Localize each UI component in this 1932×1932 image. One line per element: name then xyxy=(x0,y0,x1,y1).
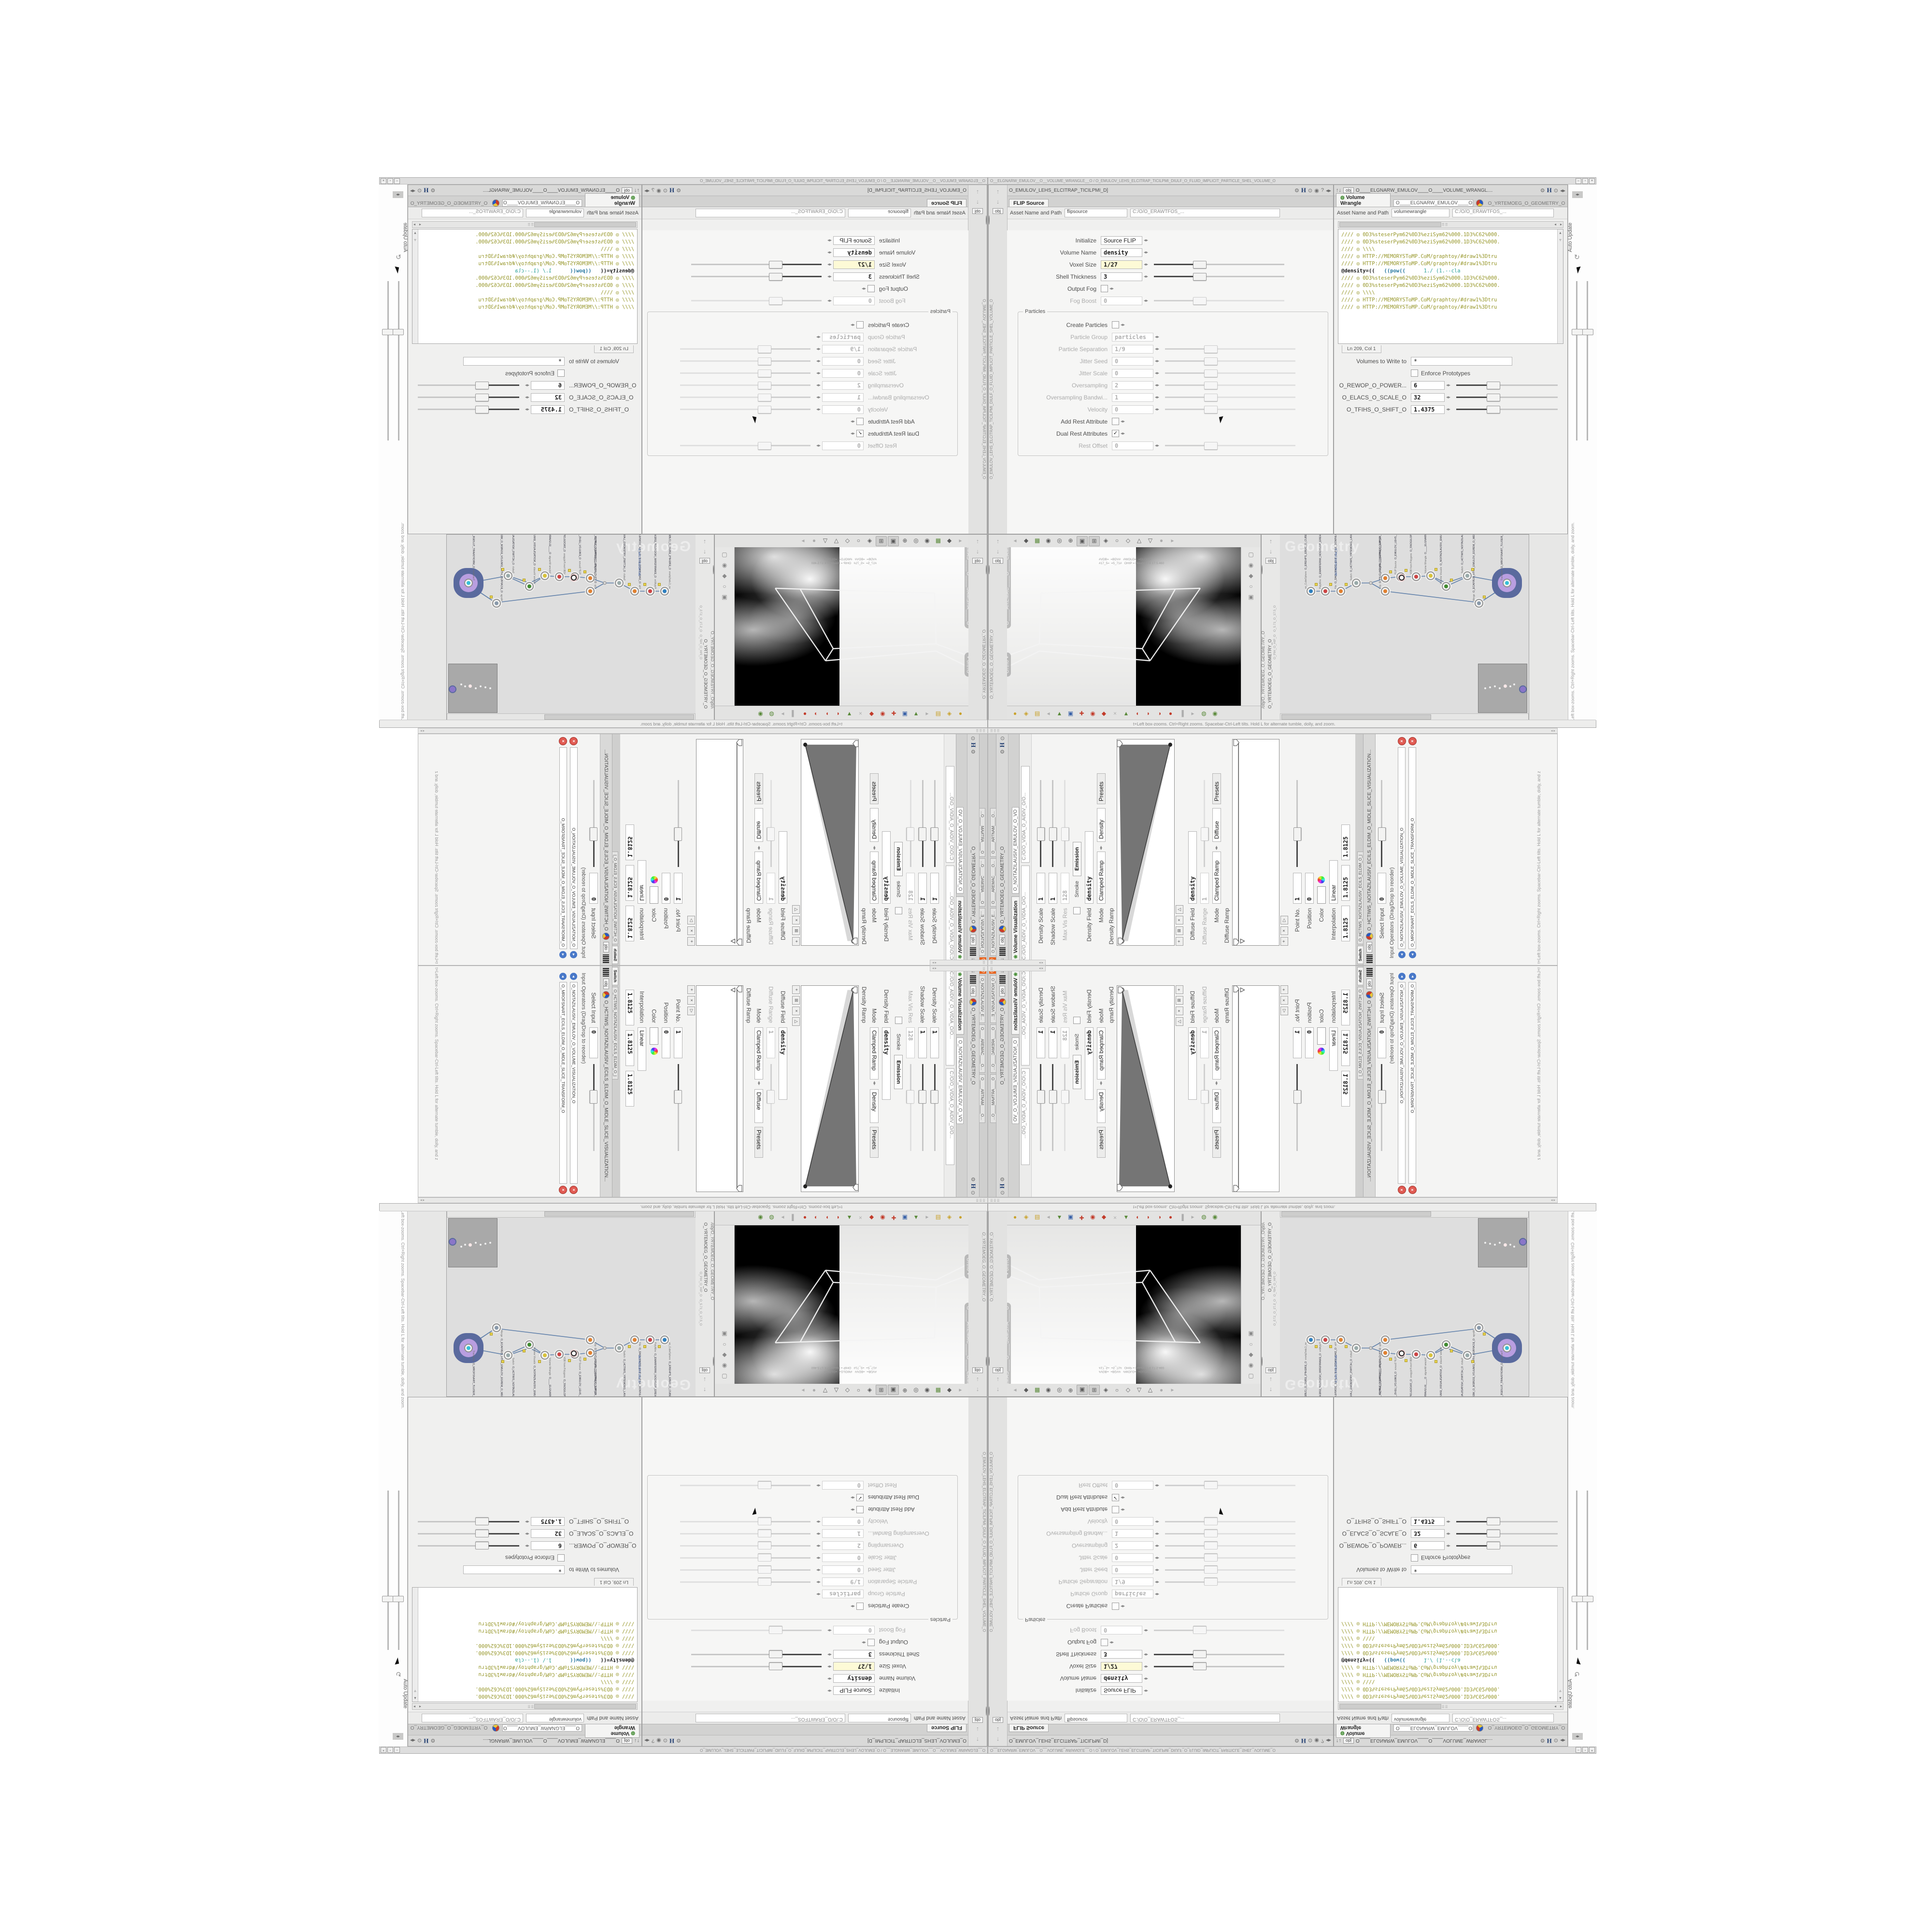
pane-arrows-chip[interactable]: ◂▸ xyxy=(1572,1733,1583,1740)
viewport-tool-icon[interactable]: ▸ xyxy=(798,1386,808,1395)
network-node[interactable]: TransformO_MROFSNART_TLUSER_O_RESULT_TRA… xyxy=(1503,579,1511,587)
param-value-field[interactable]: 1.4375 xyxy=(531,1518,565,1526)
volumes-field[interactable]: * xyxy=(463,357,565,366)
color-pie-icon[interactable] xyxy=(1262,1357,1263,1366)
op-path-field[interactable]: O_MROFSNART_ECILS_ELDIM_O_MIDLE_SLICE_TR… xyxy=(1408,747,1416,949)
param-value-field[interactable]: 128 xyxy=(907,873,915,904)
param-slider[interactable] xyxy=(680,1557,810,1559)
flip-breadcrumb[interactable]: O_EMULOV_LEHS_ELCITRAP_TICILPMI_D] xyxy=(1009,1738,1293,1744)
param-value-field[interactable]: particles xyxy=(1112,333,1153,341)
param-checkbox[interactable] xyxy=(1112,321,1119,328)
obj-context-chip[interactable]: obj xyxy=(993,558,1003,564)
param-value-field[interactable]: 2 xyxy=(1112,1542,1153,1550)
viewport-tool-icon[interactable]: ◉ xyxy=(1043,1386,1053,1395)
refresh-icon[interactable]: ↻ xyxy=(396,1670,401,1678)
color-wheel-icon[interactable] xyxy=(651,1048,658,1055)
spinner-icon[interactable]: ◂▸ xyxy=(851,1507,855,1512)
presets-button[interactable]: Presets xyxy=(870,773,879,804)
switch-tab[interactable]: Switch xyxy=(1357,946,1363,964)
asset-path-field[interactable]: C:/O/O_ERAWTFOS_... xyxy=(1130,1714,1280,1722)
scroll-left-icon[interactable]: ◂ xyxy=(1554,222,1556,227)
info-icon[interactable]: ◉ xyxy=(656,187,661,194)
enforce-checkbox[interactable] xyxy=(1411,369,1418,377)
node-flag-icon[interactable] xyxy=(1435,568,1437,571)
display-option-icon[interactable]: ▢ xyxy=(1241,551,1261,558)
info-icon[interactable]: ◉ xyxy=(1314,187,1319,194)
viewport-tool-icon[interactable]: ⊕ xyxy=(900,536,910,545)
spinner-icon[interactable]: ◂▸ xyxy=(1144,1688,1148,1693)
viewport-tool-icon[interactable]: ◎ xyxy=(911,1386,921,1395)
snap-tool-icon[interactable]: ▸ xyxy=(1188,709,1198,718)
param-slider[interactable] xyxy=(1165,397,1295,398)
snap-tool-icon[interactable]: ◂ xyxy=(922,1213,932,1222)
display-option-icon[interactable]: ○ xyxy=(715,583,734,590)
nav-up-icon[interactable]: ↑ xyxy=(993,1736,1003,1743)
param-checkbox[interactable] xyxy=(1101,285,1108,292)
snap-tool-icon[interactable]: ◍ xyxy=(767,1213,777,1222)
band-bottom-grip[interactable]: ⠿◂ ▸ xyxy=(988,966,1046,971)
ramp-play-icon[interactable]: ▷ xyxy=(1280,1007,1288,1015)
switch-breadcrumb-tab[interactable]: O_HCTIWS_NOITAZILAUSIV_ECILS_ELDIM_O_| xyxy=(612,987,618,1080)
ramp-play-icon[interactable]: ▷ xyxy=(687,1007,695,1015)
node-flag-icon[interactable] xyxy=(1471,1360,1474,1363)
snap-tool-icon[interactable]: ▲ xyxy=(1121,1213,1131,1222)
snap-tool-icon[interactable]: ◉ xyxy=(878,1213,888,1222)
spinner-icon[interactable]: ◂▸ xyxy=(1155,1483,1159,1488)
viewport-tool-icon[interactable]: ⊞ xyxy=(876,1385,887,1395)
switch-breadcrumb-tab[interactable]: O_HCTIWS_NOITAZILAUSIV_ECILS_ELDIM_O_| xyxy=(1357,987,1363,1080)
snap-tool-icon[interactable]: ● xyxy=(1010,1213,1020,1222)
viewport-tool-icon[interactable]: ◆ xyxy=(944,1386,954,1395)
color-pie-icon[interactable] xyxy=(713,565,714,574)
flip-source-tab[interactable]: FLIP Source xyxy=(1009,199,1049,207)
viewport-tool-icon[interactable]: ◇ xyxy=(1123,536,1133,545)
diffuse-field-value[interactable]: density xyxy=(1188,1027,1197,1100)
obj-context-chip[interactable]: obj xyxy=(1366,979,1372,989)
spinner-icon[interactable]: ◂▸ xyxy=(816,383,821,388)
param-value-field[interactable]: 1/9 xyxy=(822,345,864,354)
network-node[interactable]: MergeO_ECAFRUS_HTIW_EMULOV_EGREM_O_MERGE… xyxy=(492,599,501,608)
snap-tool-icon[interactable]: ● xyxy=(1010,709,1020,718)
node-flag-icon[interactable] xyxy=(568,569,571,572)
param-value-field[interactable]: 32 xyxy=(531,393,565,402)
code-v-scrollbar[interactable]: ▲▽ xyxy=(1557,229,1563,343)
viz-checkbox[interactable] xyxy=(1073,907,1080,914)
op-path-field[interactable]: O_NOITAZILAUSIV_EMULOV_O_VOLUME_VISUALIZ… xyxy=(570,747,578,949)
asset-path-field[interactable]: C:/O/O_ERAWTFOS_... xyxy=(1452,209,1554,217)
viewport-tool-icon[interactable]: ▦ xyxy=(1032,1386,1042,1395)
gear-icon[interactable]: ⚙ xyxy=(676,1738,681,1744)
viewport-tool-icon[interactable]: ○ xyxy=(1112,536,1122,545)
param-slider[interactable] xyxy=(910,780,911,867)
spinner-icon[interactable]: ◂▸ xyxy=(1155,1531,1159,1536)
film-clapper-icon[interactable] xyxy=(1366,954,1373,963)
param-slider[interactable] xyxy=(691,1654,822,1655)
snap-tool-icon[interactable]: ◍ xyxy=(1199,709,1209,718)
ramp-del-icon[interactable]: × xyxy=(687,996,695,1005)
ortho-pill-wrap[interactable]: Ortho ▾ xyxy=(1007,1254,1011,1279)
spinner-icon[interactable]: ◂▸ xyxy=(816,407,821,412)
color-pie-icon[interactable] xyxy=(986,565,987,574)
film-clapper-icon[interactable] xyxy=(603,954,610,963)
spinner-icon[interactable]: ◂▸ xyxy=(1144,1628,1148,1633)
spinner-icon[interactable]: ◂▸ xyxy=(827,1664,832,1669)
display-option-icon[interactable]: ◆ xyxy=(715,1352,734,1359)
diffuse-range-value[interactable]: 1 xyxy=(1200,1027,1209,1058)
display-option-icon[interactable]: ▣ xyxy=(1241,594,1261,600)
diffuse-range-value[interactable]: 1 xyxy=(1200,873,1209,904)
viewport-tool-icon[interactable]: ◉ xyxy=(922,1386,932,1395)
spinner-icon[interactable]: ◂▸ xyxy=(1121,1604,1125,1609)
gear-icon[interactable]: ⚙ xyxy=(430,187,435,194)
param-value-field[interactable]: 0 xyxy=(822,1566,864,1575)
param-value-field[interactable]: 1 xyxy=(674,1027,683,1058)
presets-button[interactable]: Presets xyxy=(1097,773,1106,804)
vex-code-area[interactable]: //// ◎ 0D3%steserPym62%0D3%eziSym62%000.… xyxy=(412,229,638,344)
wrangle-breadcrumb[interactable]: O____ELGNARW_EMULOV____O____VOLUME_WRANG… xyxy=(437,1738,620,1744)
op-insert-icon[interactable]: ◂ xyxy=(560,973,567,980)
snap-tool-icon[interactable]: ✚ xyxy=(1077,1213,1087,1222)
spinner-icon[interactable]: ◂▸ xyxy=(525,407,529,412)
spinner-icon[interactable]: ◂▸ xyxy=(816,443,821,448)
rgb-value-field[interactable]: 1.8125 xyxy=(1341,1030,1350,1066)
spinner-icon[interactable]: ◂▸ xyxy=(1155,1567,1159,1573)
wrangle-node-name-field[interactable]: O____ELGNARW_EMULOV____O xyxy=(1393,199,1473,207)
density-field-value[interactable]: density xyxy=(882,831,891,904)
color-pie-icon[interactable] xyxy=(970,925,977,933)
spinner-icon[interactable]: ◂▸ xyxy=(851,322,855,327)
param-value-field[interactable]: 32 xyxy=(1411,1530,1445,1538)
viewport-tool-icon[interactable]: ▽ xyxy=(1145,536,1155,545)
param-slider[interactable] xyxy=(922,1064,923,1151)
ramp-box-icon[interactable]: ⊞ xyxy=(1176,926,1183,935)
viewport-tool-icon[interactable]: ▣ xyxy=(1077,536,1088,546)
node-flag-icon[interactable] xyxy=(1435,1360,1437,1363)
presets-button[interactable]: Presets xyxy=(1097,1127,1106,1158)
scroll-right-icon[interactable]: ▸ xyxy=(413,222,415,227)
spinner-icon[interactable]: ◂▸ xyxy=(1446,395,1450,400)
nav-down-icon[interactable]: ↓ xyxy=(973,1376,982,1383)
viewport-tool-icon[interactable]: ◈ xyxy=(1101,1386,1111,1395)
channel-menu[interactable]: Diffuse xyxy=(1212,1089,1221,1123)
display-option-icon[interactable]: ○ xyxy=(715,1341,734,1348)
param-slider[interactable] xyxy=(1154,1666,1284,1667)
param-value-field[interactable]: 3 xyxy=(833,1650,875,1659)
network-tab-label[interactable]: O_YRTEMOEG_O_GEOMETRY_O xyxy=(703,639,708,709)
param-value-field[interactable]: 6 xyxy=(531,381,565,390)
volume-wrangle-tab[interactable]: ◍Volume Wrangle xyxy=(585,1724,639,1738)
node-flag-icon[interactable] xyxy=(583,570,586,573)
param-value-field[interactable]: 1.4375 xyxy=(1411,405,1445,414)
viewport-tool-icon[interactable]: ⊕ xyxy=(1065,536,1076,545)
viewport-tool-icon[interactable]: ◎ xyxy=(911,536,921,545)
spinner-icon[interactable]: ◂▸ xyxy=(816,1567,821,1573)
volviz-node-name-field[interactable]: O_NOITAZILAUSIV_EMULOV_O_VO xyxy=(956,1037,964,1124)
param-value-field[interactable]: 1 xyxy=(1049,873,1057,904)
param-slider[interactable] xyxy=(1165,360,1295,362)
viewport-tool-icon[interactable]: ◂ xyxy=(955,1386,966,1395)
snap-tool-icon[interactable]: ✚ xyxy=(1077,709,1087,718)
param-value-field[interactable]: 1/9 xyxy=(822,1578,864,1587)
snap-tool-icon[interactable]: ▲ xyxy=(844,1213,854,1222)
ramp-add-icon[interactable]: + xyxy=(687,985,695,994)
ramp-add-icon[interactable]: + xyxy=(1176,985,1183,994)
param-slider[interactable] xyxy=(1154,1630,1284,1631)
wrangle-breadcrumb[interactable]: O____ELGNARW_EMULOV____O____VOLUME_WRANG… xyxy=(437,188,620,193)
color-pie-icon[interactable] xyxy=(1366,991,1373,998)
scroll-arrows-icon[interactable]: ◂ ▸ xyxy=(1551,1198,1555,1202)
spinner-icon[interactable]: ◂▸ xyxy=(816,1483,821,1488)
spinner-icon[interactable]: ◂▸ xyxy=(1121,322,1125,327)
film-clapper-icon[interactable] xyxy=(970,975,977,984)
switch-breadcrumb-tab[interactable]: O_HCTIWS_NOITAZILAUSIV_ECILS_ELDIM_O_| xyxy=(612,852,618,944)
param-slider[interactable] xyxy=(680,1545,810,1547)
wrangle-node-name-field[interactable]: O____ELGNARW_EMULOV____O xyxy=(502,199,582,207)
node-flag-icon[interactable] xyxy=(1389,1358,1392,1361)
viz-checkbox[interactable] xyxy=(895,907,902,914)
spinner-icon[interactable]: ◂▸ xyxy=(816,1543,821,1548)
op-delete-icon[interactable]: × xyxy=(570,737,578,745)
asset-path-field[interactable]: C:/O/O_ERAWTFOS_... xyxy=(1130,209,1280,217)
density-ramp-widget[interactable] xyxy=(801,739,859,946)
param-value-field[interactable]: 1 xyxy=(919,873,927,904)
snap-tool-icon[interactable]: ● xyxy=(955,1213,966,1222)
enforce-checkbox[interactable] xyxy=(557,369,565,377)
viewport-tool-icon[interactable]: ○ xyxy=(1112,1386,1122,1395)
color-wheel-icon[interactable] xyxy=(651,876,658,883)
node-flag-icon[interactable] xyxy=(490,1333,493,1335)
network-node[interactable]: MergeO_ECAFRUS_HTIW_EMULOV_EGREM_O_MERGE… xyxy=(1475,1323,1483,1332)
param-value-field[interactable]: 1/9 xyxy=(1112,345,1153,354)
param-slider[interactable] xyxy=(1165,1485,1295,1486)
spinner-icon[interactable]: ◂▸ xyxy=(816,1555,821,1561)
spinner-icon[interactable]: ◂▸ xyxy=(816,1531,821,1536)
color-pie-icon[interactable] xyxy=(989,1357,990,1366)
spinner-icon[interactable]: ◂▸ xyxy=(872,1081,877,1085)
color-pie-icon[interactable] xyxy=(970,998,977,1006)
param-value-field[interactable]: 1.4375 xyxy=(1411,1518,1445,1526)
param-slider[interactable] xyxy=(418,397,519,398)
param-slider[interactable] xyxy=(1064,1064,1065,1151)
switch-tab[interactable]: Switch xyxy=(1357,967,1363,985)
display-option-icon[interactable]: ◆ xyxy=(1241,1352,1261,1359)
spinner-icon[interactable]: ◂▸ xyxy=(1446,1543,1450,1548)
code-h-scrollbar[interactable]: ⠿⠿ ◂ ▸ xyxy=(1338,221,1563,228)
nav-down-icon[interactable]: ↓ xyxy=(973,198,982,205)
nav-down-icon[interactable]: ↓ xyxy=(700,1376,710,1383)
param-slider[interactable] xyxy=(680,397,810,398)
asset-path-field[interactable]: C:/O/O_ERAWTFOS_... xyxy=(422,1714,523,1722)
display-option-icon[interactable]: ▣ xyxy=(715,594,734,600)
window-titlebar[interactable]: O__ELGNARW_EMULOV__O__VOLUME_WRANGLE__O … xyxy=(380,1747,987,1753)
auto-update-label[interactable]: Auto Update xyxy=(1567,1679,1573,1708)
viewport-tool-icon[interactable]: ◇ xyxy=(842,1386,852,1395)
op-path-field[interactable]: O_NOITAZILAUSIV_EMULOV_O_VOLUME_VISUALIZ… xyxy=(1398,982,1406,1184)
param-slider[interactable] xyxy=(1064,780,1065,867)
v-slider-2[interactable] xyxy=(1587,281,1588,440)
spinner-icon[interactable]: ◂▸ xyxy=(525,1519,529,1524)
display-option-icon[interactable]: ◆ xyxy=(1241,572,1261,579)
obj-context-chip[interactable]: obj xyxy=(970,935,976,945)
param-value-field[interactable]: 1 xyxy=(1037,873,1045,904)
spinner-icon[interactable]: ◂▸ xyxy=(1144,1664,1148,1669)
param-slider[interactable] xyxy=(1296,1064,1298,1151)
switch-breadcrumb-tab[interactable]: O_HCTIWS_NOITAZILAUSIV_ECILS_ELDIM_O_| xyxy=(1357,852,1363,944)
scroll-left-icon[interactable]: ◂ xyxy=(419,222,421,227)
gear-icon[interactable]: ⚙ xyxy=(1540,187,1545,194)
snap-tool-icon[interactable]: ▤ xyxy=(1032,1213,1042,1222)
wrangle-node-name-field[interactable]: O____ELGNARW_EMULOV____O xyxy=(1393,1724,1473,1732)
param-value-field[interactable]: Source FLIP xyxy=(1101,236,1142,245)
spinner-icon[interactable]: ◂▸ xyxy=(1155,395,1159,400)
pane-arrows-icon[interactable]: ◂▸ xyxy=(1560,187,1565,194)
info-icon[interactable]: ◉ xyxy=(656,1738,661,1744)
snap-tool-icon[interactable]: ◆ xyxy=(1099,1213,1109,1222)
param-slider[interactable] xyxy=(1165,445,1295,446)
network-canvas[interactable]: Geometry xyxy=(1280,1217,1529,1396)
color-pie-icon[interactable] xyxy=(603,933,610,940)
param-value-field[interactable]: 0 xyxy=(1112,369,1153,378)
spinner-icon[interactable]: ◂▸ xyxy=(827,274,832,279)
op-path-field[interactable]: O_MROFSNART_ECILS_ELDIM_O_MIDLE_SLICE_TR… xyxy=(559,747,567,949)
viewport-tool-icon[interactable]: ▽ xyxy=(820,1386,830,1395)
param-value-field[interactable]: 0 xyxy=(1112,1554,1153,1563)
snap-tool-icon[interactable]: ● xyxy=(1165,709,1176,718)
search-icon[interactable]: ⊙ xyxy=(970,736,977,740)
refresh-icon[interactable]: ↻ xyxy=(396,253,401,261)
band-pane-tab[interactable]: O____ARTNAM____O... xyxy=(980,808,985,856)
camera-pill-wrap[interactable]: O____AREMAC____O____CAMERA____O xyxy=(965,1303,968,1384)
param-checkbox[interactable] xyxy=(856,430,864,437)
viewport-tool-icon[interactable]: △ xyxy=(1134,1386,1144,1395)
asset-name-field[interactable]: flipsource xyxy=(1065,209,1127,217)
param-checkbox[interactable] xyxy=(856,1603,864,1610)
network-node[interactable]: Volume VisualizO_NOITAZILAUSIV_EMULOV_O_… xyxy=(1442,582,1450,591)
network-node[interactable]: Volume VisualizO_NOITAZILAUSIV_EMULOV_O_… xyxy=(525,1340,534,1349)
nav-up-icon[interactable]: ↑ xyxy=(973,1386,982,1393)
param-value-field[interactable]: 1.4375 xyxy=(531,405,565,414)
viewport-tool-icon[interactable]: ▽ xyxy=(820,536,830,545)
presets-button[interactable]: Presets xyxy=(1212,1127,1221,1158)
volumes-field[interactable]: * xyxy=(1411,357,1512,366)
param-slider[interactable] xyxy=(1456,384,1558,386)
volviz-node-name-field[interactable]: O_NOITAZILAUSIV_EMULOV_O_VO xyxy=(1012,807,1019,894)
spinner-icon[interactable]: ◂▸ xyxy=(816,370,821,376)
viewport-tool-icon[interactable]: ▣ xyxy=(888,1385,899,1395)
viewport-tool-icon[interactable]: ◇ xyxy=(842,536,852,545)
param-value-field[interactable]: 0 xyxy=(1305,873,1314,904)
tab-smoke[interactable]: Smoke xyxy=(895,876,903,902)
node-flag-icon[interactable] xyxy=(1389,570,1392,573)
param-slider[interactable] xyxy=(593,1064,595,1151)
obj-context-chip[interactable]: obj xyxy=(972,558,983,564)
network-node[interactable]: MergeO_ECAFRUS_HTIW_EMULOV_EGREM_O_MERGE… xyxy=(492,1323,501,1332)
maximize-button[interactable]: ▫ xyxy=(1582,178,1588,184)
gear-icon[interactable]: ⚙ xyxy=(676,187,681,194)
param-slider[interactable] xyxy=(680,372,810,374)
param-value-field[interactable]: 0 xyxy=(662,1027,671,1058)
presets-button[interactable]: Presets xyxy=(1212,773,1221,804)
gear-icon[interactable]: ⚙ xyxy=(970,749,977,754)
window-titlebar[interactable]: O__ELGNARW_EMULOV__O__VOLUME_WRANGLE__O … xyxy=(988,178,1596,185)
color-pie-icon[interactable] xyxy=(1476,1724,1483,1732)
display-option-icon[interactable]: ◉ xyxy=(715,562,734,568)
param-value-field[interactable]: Source FLIP xyxy=(833,236,875,245)
snap-tool-icon[interactable]: ▤ xyxy=(1032,709,1042,718)
param-checkbox[interactable] xyxy=(867,285,875,292)
tab-smoke[interactable]: Smoke xyxy=(895,1029,903,1055)
spinner-icon[interactable]: ◂▸ xyxy=(1155,383,1159,388)
snap-tool-icon[interactable]: ◖ xyxy=(833,1213,843,1222)
spinner-icon[interactable]: ◂▸ xyxy=(851,419,855,424)
param-slider[interactable] xyxy=(1456,397,1558,398)
tab-emission[interactable]: Emission xyxy=(1073,842,1081,876)
viewport-tool-icon[interactable]: ◇ xyxy=(1123,1386,1133,1395)
spinner-icon[interactable]: ◂▸ xyxy=(862,286,866,291)
rgb-value-field[interactable]: 1.8125 xyxy=(626,1071,635,1107)
viewport-tool-icon[interactable]: △ xyxy=(1134,536,1144,545)
snap-tool-icon[interactable]: ▐ xyxy=(1177,1213,1187,1222)
network-canvas[interactable]: Geometry xyxy=(447,535,696,714)
diffuse-ramp-widget[interactable] xyxy=(696,739,743,946)
asset-name-field[interactable]: volumewrangle xyxy=(1392,209,1449,217)
mode-menu[interactable]: Clamped Ramp xyxy=(755,852,764,904)
param-value-field[interactable]: 0 xyxy=(833,1626,875,1635)
viewport-tool-icon[interactable]: ▸ xyxy=(1167,1386,1178,1395)
spinner-icon[interactable]: ◂▸ xyxy=(525,395,529,400)
network-node[interactable]: SwitchO_HCTIWS_NOITAZILAUSIV_ECILS_ELDIM… xyxy=(1463,571,1472,580)
minimize-button[interactable]: – xyxy=(1576,178,1581,184)
op-insert-icon[interactable]: ◂ xyxy=(1398,973,1406,980)
op-delete-icon[interactable]: × xyxy=(1398,737,1406,745)
rgb-value-field[interactable]: 1.8125 xyxy=(1341,990,1350,1025)
spinner-icon[interactable]: ◂▸ xyxy=(1155,358,1159,364)
viewport-tool-icon[interactable]: ⊕ xyxy=(1065,1386,1076,1395)
param-slider[interactable] xyxy=(418,409,519,410)
pane-arrows-chip[interactable]: ◂▸ xyxy=(1572,191,1583,198)
node-flag-icon[interactable] xyxy=(1345,1345,1348,1348)
nav-arrows-icon[interactable]: ↑↓ xyxy=(1336,187,1341,193)
viz-checkbox[interactable] xyxy=(895,1017,902,1024)
param-slider[interactable] xyxy=(1165,1521,1295,1522)
snap-tool-icon[interactable]: ▐ xyxy=(789,1213,799,1222)
window-titlebar[interactable]: O__ELGNARW_EMULOV__O__VOLUME_WRANGLE__O … xyxy=(988,1747,1596,1753)
spinner-icon[interactable]: ◂▸ xyxy=(1144,250,1148,255)
param-slider[interactable] xyxy=(1154,264,1284,265)
ramp-add-icon[interactable]: + xyxy=(792,937,800,946)
channel-menu[interactable]: Density xyxy=(1097,808,1106,842)
scroll-right-icon[interactable]: ▸ xyxy=(1560,222,1562,227)
node-flag-icon[interactable] xyxy=(658,1345,661,1348)
param-slider[interactable] xyxy=(678,780,679,867)
spinner-icon[interactable]: ◂▸ xyxy=(1109,286,1114,291)
param-value-field[interactable]: Source FLIP xyxy=(1101,1687,1142,1695)
nav-arrows-icon[interactable]: ↑↓ xyxy=(634,187,639,193)
auto-update-label[interactable]: Auto Update xyxy=(1567,223,1573,252)
flip-breadcrumb[interactable]: O_EMULOV_LEHS_ELCITRAP_TICILPMI_D] xyxy=(683,1738,966,1744)
ramp-del-icon[interactable]: × xyxy=(792,916,800,924)
density-ramp-widget[interactable] xyxy=(1117,985,1175,1192)
snap-tool-icon[interactable]: × xyxy=(855,709,866,718)
network-node[interactable]: ClipO_PILC_REWOL_O_LOWER_CLIP_O xyxy=(1381,1335,1390,1344)
param-slider[interactable] xyxy=(1165,1545,1295,1547)
search-icon[interactable]: ⊙ xyxy=(417,187,422,194)
param-slider[interactable] xyxy=(691,1630,822,1631)
code-v-scrollbar[interactable]: ▲▽ xyxy=(1557,1588,1563,1702)
snap-tool-icon[interactable]: ◂ xyxy=(1043,1213,1053,1222)
volume-wrangle-tab[interactable]: ◍Volume Wrangle xyxy=(585,193,639,207)
display-option-icon[interactable]: ▢ xyxy=(1241,1373,1261,1380)
